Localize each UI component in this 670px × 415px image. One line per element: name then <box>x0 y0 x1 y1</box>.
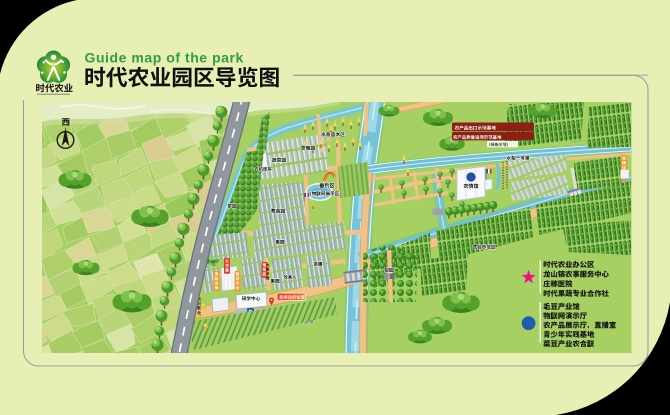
svg-text:Guide map of the park: Guide map of the park <box>85 49 244 65</box>
